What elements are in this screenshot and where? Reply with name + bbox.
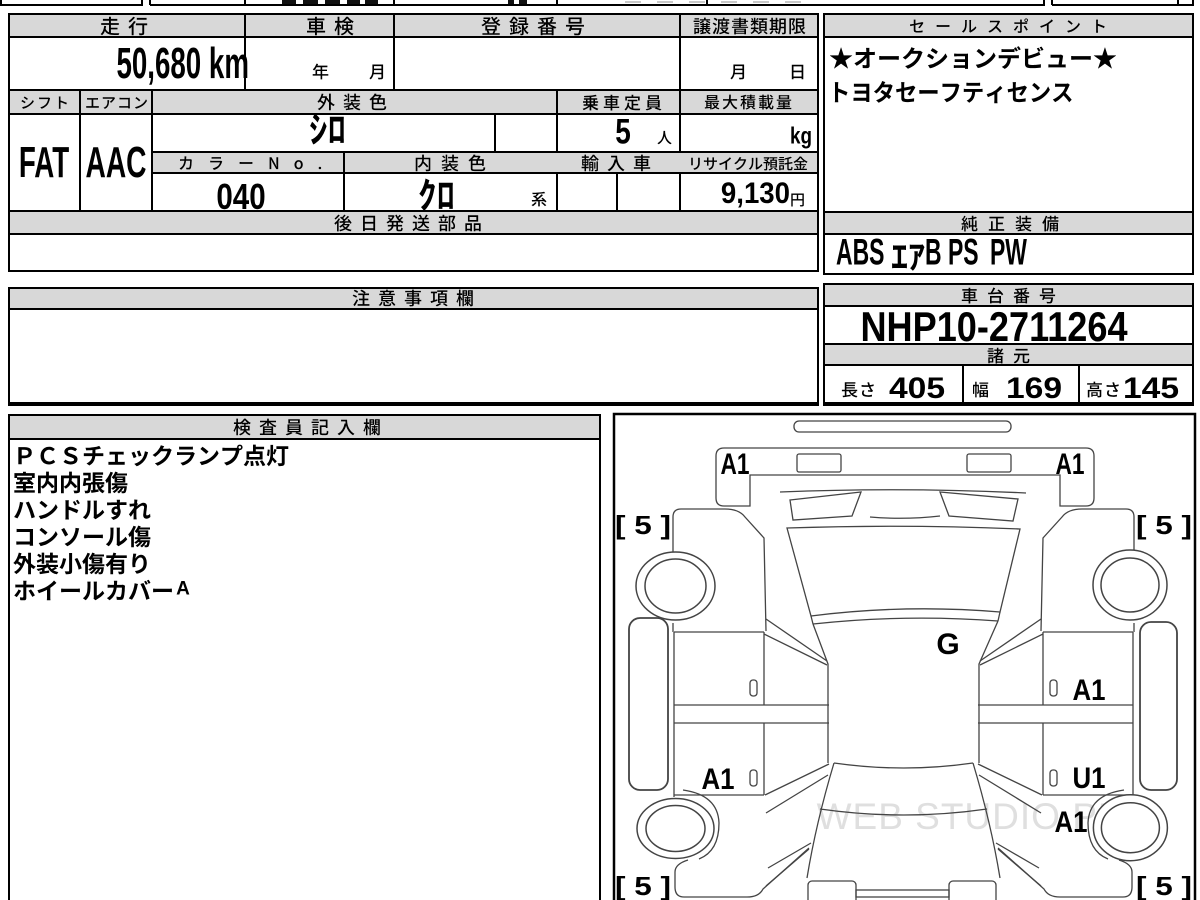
svg-text:A1: A1	[721, 448, 750, 481]
svg-text:A1: A1	[1055, 806, 1088, 839]
svg-text:[ 5 ]: [ 5 ]	[615, 510, 671, 540]
svg-text:[ 5 ]: [ 5 ]	[1136, 871, 1192, 900]
svg-text:A1: A1	[702, 763, 735, 796]
svg-text:[ 5 ]: [ 5 ]	[615, 871, 671, 900]
svg-text:[ 5 ]: [ 5 ]	[1136, 510, 1192, 540]
svg-text:A1: A1	[1073, 674, 1106, 707]
svg-text:A1: A1	[1056, 448, 1085, 481]
svg-text:U1: U1	[1073, 762, 1106, 795]
svg-text:G: G	[936, 628, 959, 661]
